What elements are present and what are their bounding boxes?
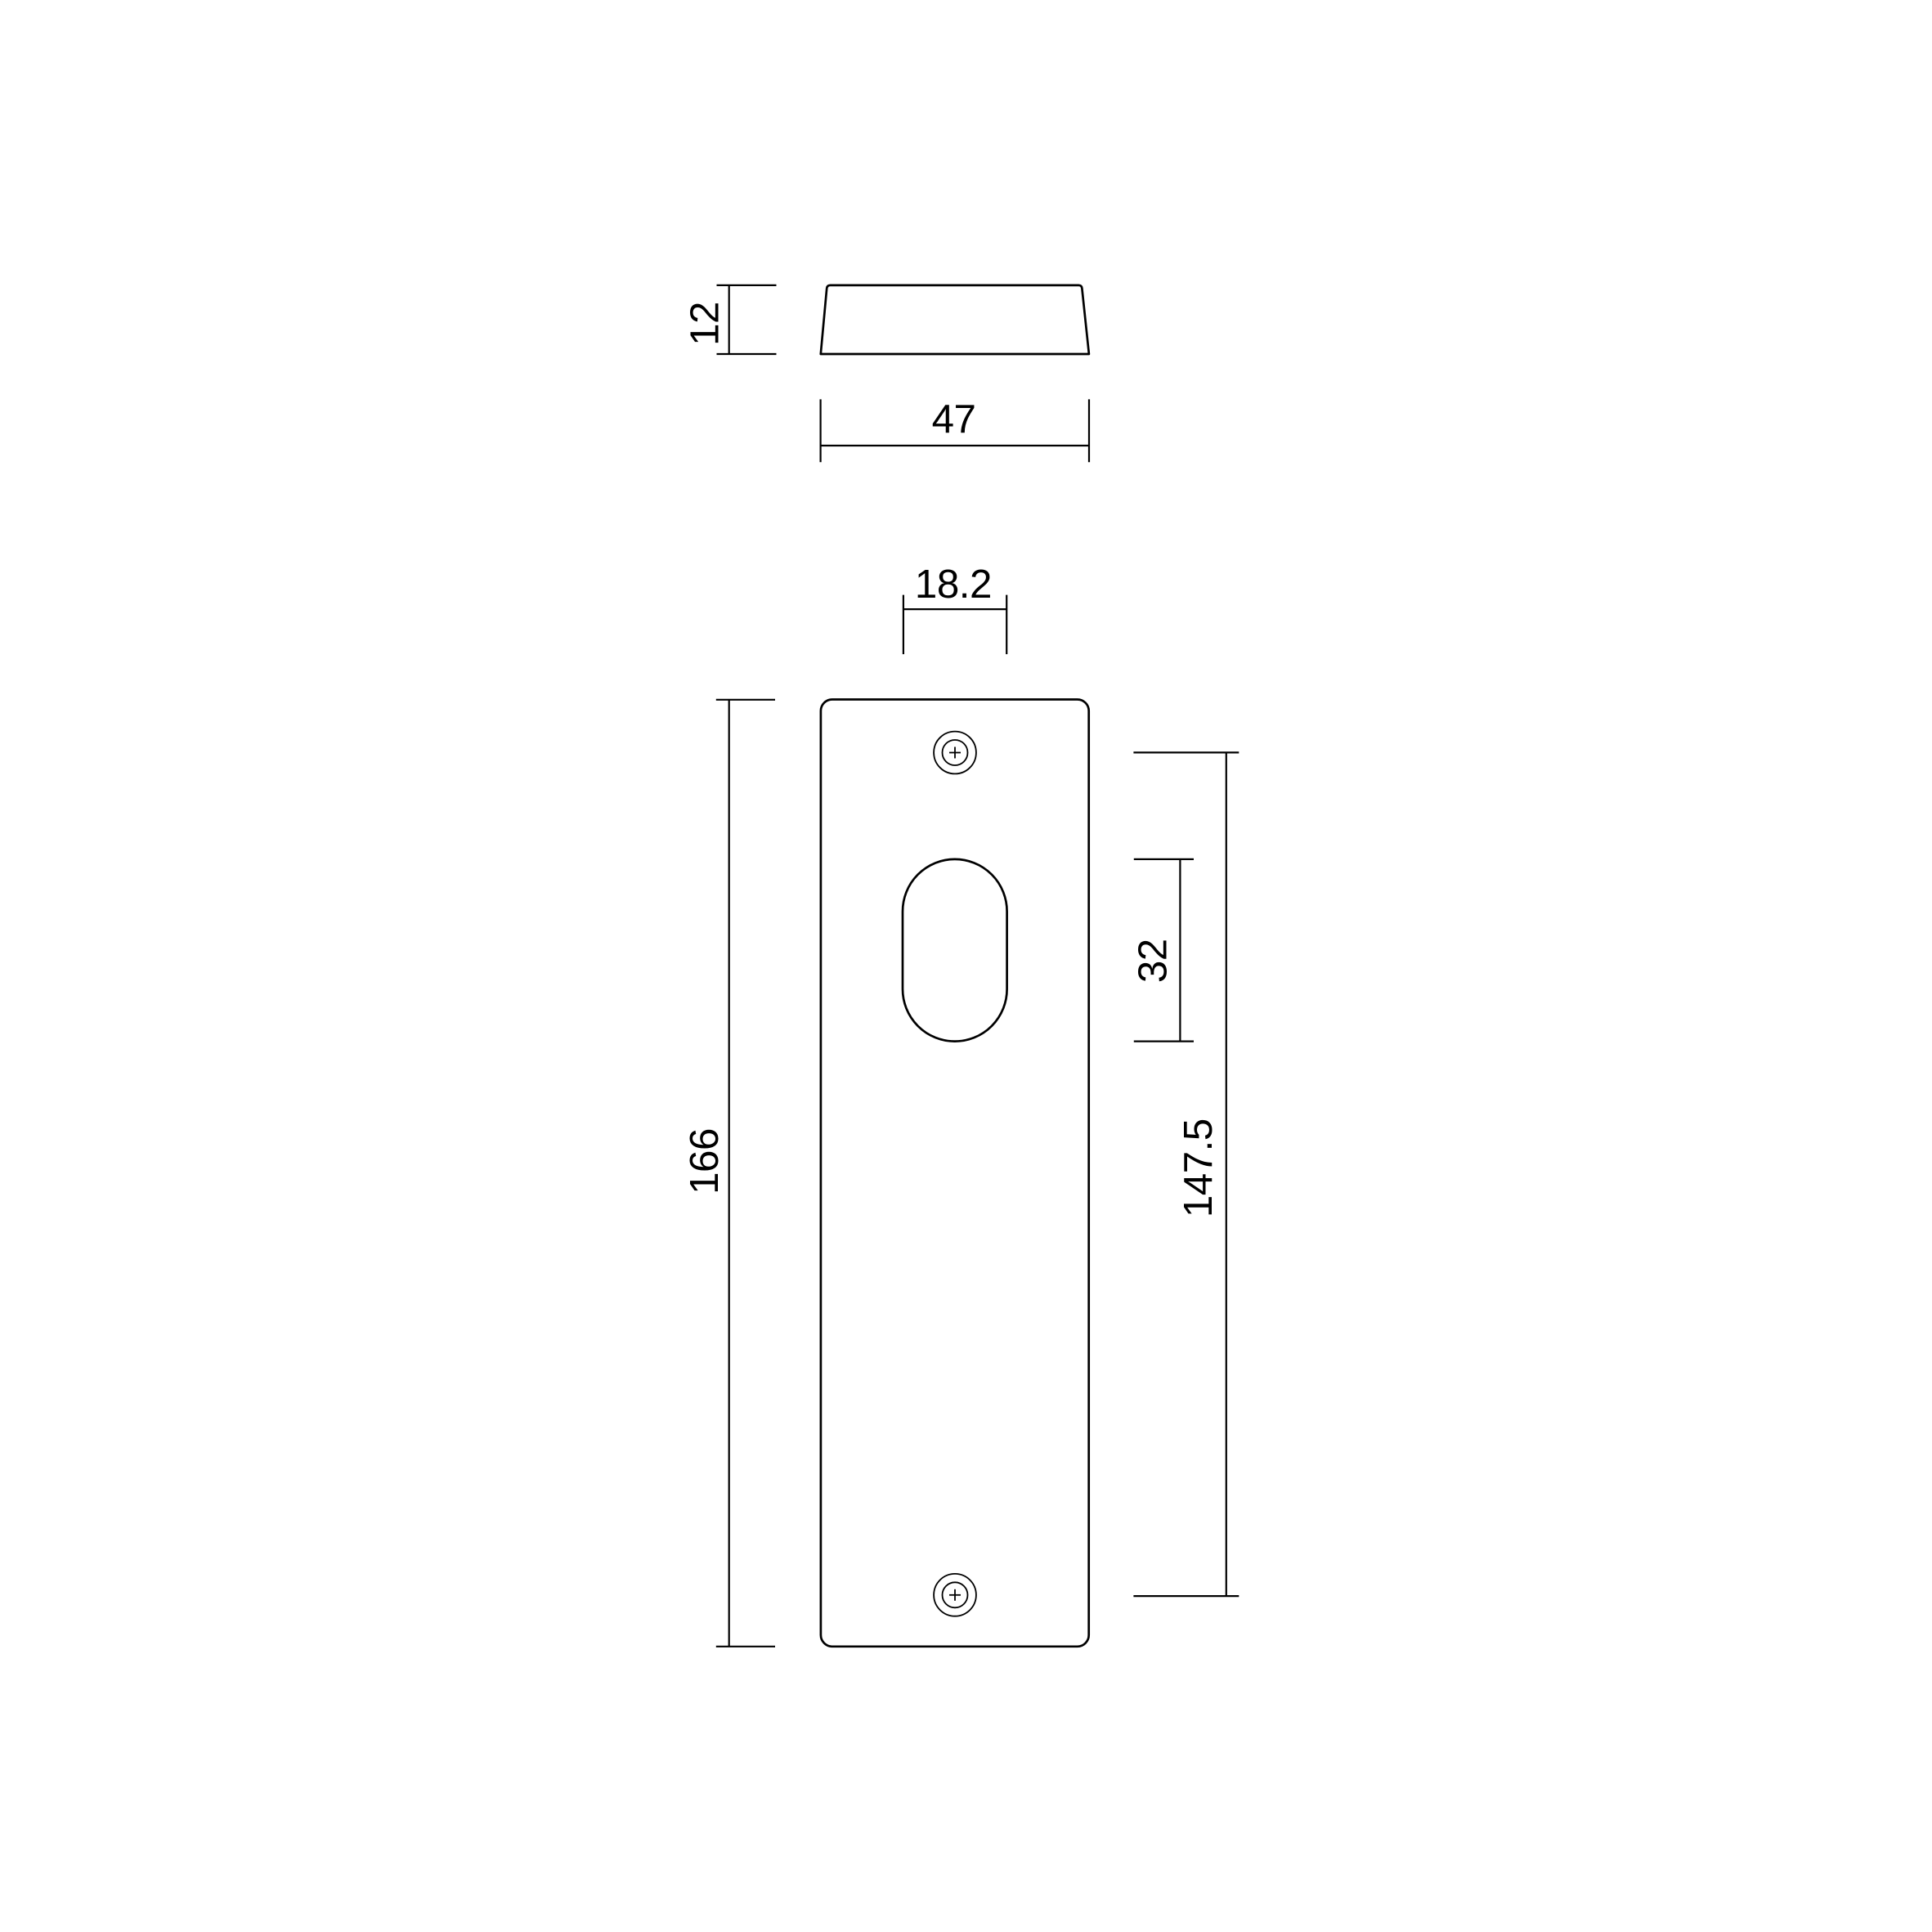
svg-text:32: 32 xyxy=(1131,939,1176,983)
svg-text:12: 12 xyxy=(682,302,727,346)
svg-text:47: 47 xyxy=(932,397,976,442)
svg-text:166: 166 xyxy=(682,1128,727,1195)
svg-text:18.2: 18.2 xyxy=(915,562,992,607)
svg-text:147.5: 147.5 xyxy=(1176,1118,1221,1217)
